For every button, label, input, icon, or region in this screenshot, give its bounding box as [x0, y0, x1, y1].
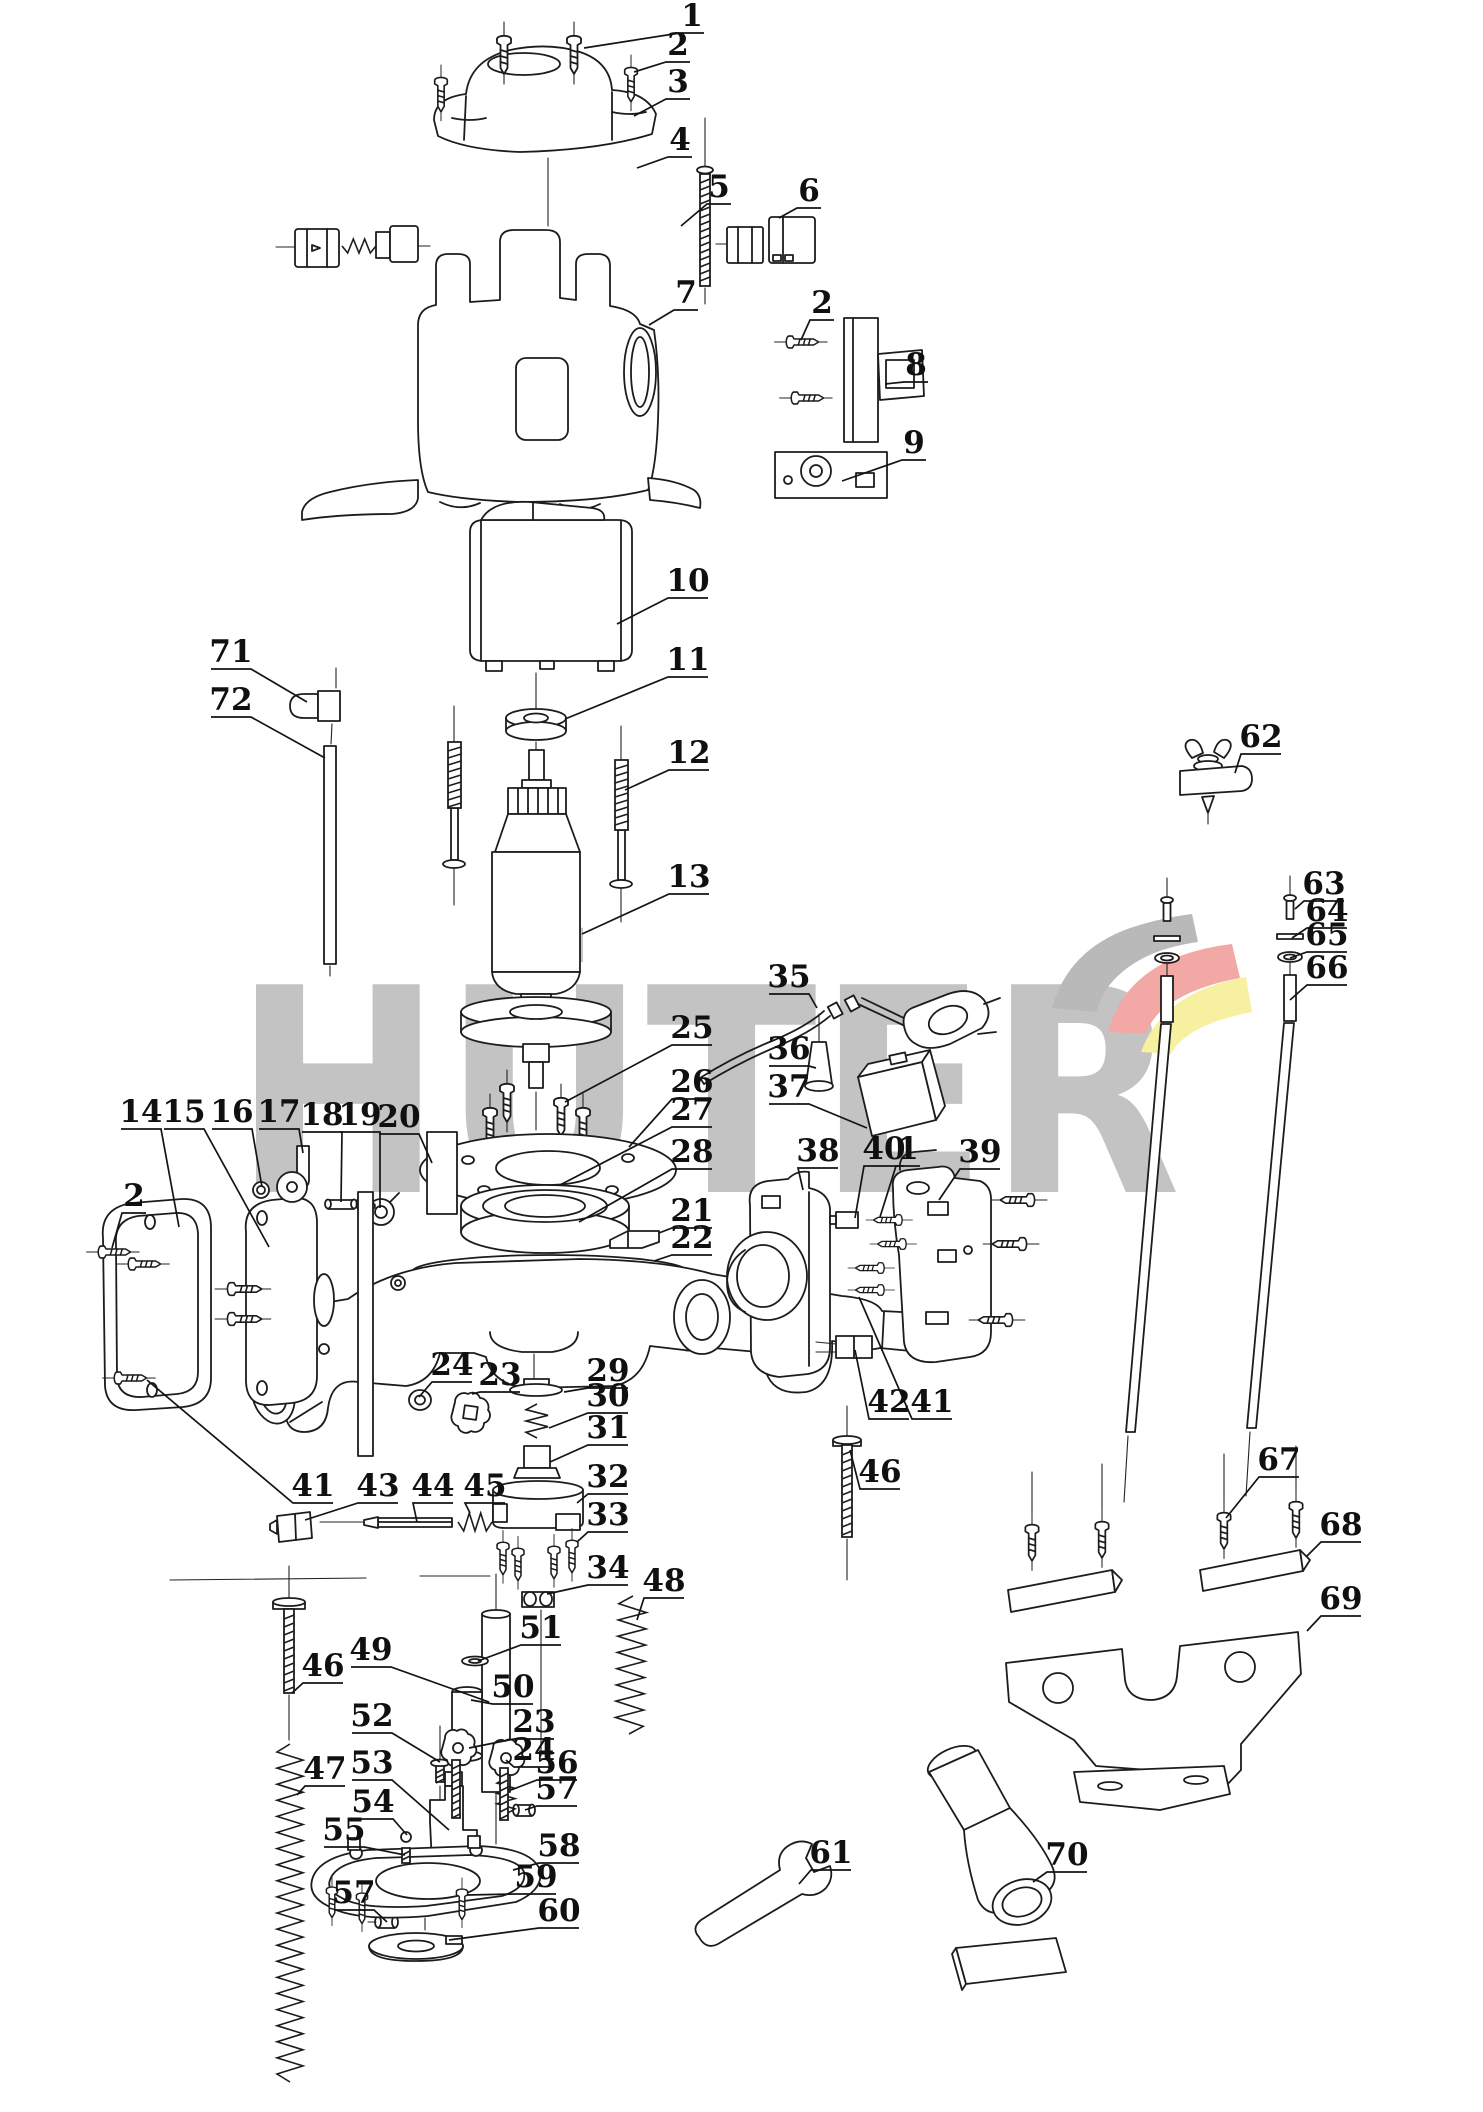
part-5-carbon-brush-left [276, 226, 430, 267]
callout-39: 39 [958, 1134, 1001, 1170]
part-27-bearing [461, 1185, 629, 1253]
callout-57a: 57 [332, 1875, 375, 1911]
callout-52: 52 [350, 1698, 393, 1734]
callout-leader-72 [211, 717, 325, 758]
part-guide-column [358, 1192, 373, 1456]
callout-59: 59 [514, 1859, 557, 1895]
callout-41b: 41 [910, 1384, 953, 1420]
part-71-clamp [290, 668, 340, 744]
callout-41a: 41 [291, 1468, 334, 1504]
part-57-nut-bottom [513, 1805, 535, 1817]
callout-23a: 23 [478, 1357, 521, 1393]
callout-2b: 2 [811, 285, 833, 321]
callout-42: 42 [867, 1384, 910, 1420]
callout-13: 13 [667, 859, 710, 895]
callout-55: 55 [322, 1812, 365, 1848]
callout-leader-66 [1290, 985, 1347, 1000]
callout-57b: 57 [535, 1771, 578, 1807]
part-31-sleeve [514, 1446, 560, 1478]
callout-7: 7 [675, 275, 697, 311]
part-11-bearing [506, 709, 566, 750]
callout-leader-48 [637, 1598, 684, 1620]
callout-71: 71 [209, 634, 252, 670]
callout-36: 36 [767, 1031, 810, 1067]
callout-35: 35 [767, 959, 810, 995]
callout-4: 4 [669, 122, 691, 158]
callout-18: 18 [300, 1097, 343, 1133]
callout-16: 16 [210, 1094, 253, 1130]
callout-44: 44 [411, 1468, 454, 1504]
part-68-clamp-bars [1008, 1550, 1310, 1612]
callout-6: 6 [798, 173, 820, 209]
callout-65: 65 [1305, 917, 1348, 953]
callout-72: 72 [209, 682, 252, 718]
part-9-bearing-plate [775, 452, 887, 498]
callout-2c: 2 [123, 1178, 145, 1214]
callout-15: 15 [162, 1094, 205, 1130]
part-10-stator [470, 502, 632, 708]
callout-leader-11 [565, 677, 708, 719]
part-6-brush-holder-right [716, 217, 815, 263]
spring-coil [342, 239, 376, 253]
callout-50: 50 [491, 1669, 534, 1705]
callout-leader-46a [292, 1683, 343, 1693]
part-72-rod [324, 746, 336, 976]
callout-5: 5 [708, 169, 730, 205]
callout-25: 25 [670, 1010, 713, 1046]
callout-19: 19 [338, 1097, 381, 1133]
callout-leader-47 [297, 1786, 345, 1795]
exploded-parts-diagram: HÜTER [0, 0, 1483, 2112]
callout-leader-7 [649, 310, 698, 325]
callout-38: 38 [796, 1133, 839, 1169]
callout-leader-12 [625, 770, 709, 790]
callout-2a: 2 [667, 27, 689, 63]
callout-27: 27 [670, 1092, 713, 1128]
callout-leader-68 [1307, 1542, 1361, 1556]
callout-49: 49 [349, 1632, 392, 1668]
callout-8: 8 [905, 347, 927, 383]
spring-coil [277, 1744, 303, 2082]
part-3-top-cap [434, 46, 656, 152]
callout-31: 31 [586, 1410, 629, 1446]
part-23-cross-knob [451, 1393, 490, 1433]
callout-17: 17 [257, 1094, 300, 1130]
callout-53: 53 [350, 1745, 393, 1781]
callout-67: 67 [1257, 1442, 1300, 1478]
spring-coil [458, 1513, 492, 1531]
diagram-svg: HÜTER [0, 0, 1483, 2112]
part-20-label-plate [427, 1132, 457, 1214]
part-24-lock-nut [409, 1390, 431, 1410]
callout-leader-2b [801, 320, 834, 340]
part-69-bracket [1006, 1632, 1301, 1810]
callout-69: 69 [1319, 1581, 1362, 1617]
callout-leader-67 [1226, 1477, 1299, 1518]
callout-leader-34 [547, 1585, 628, 1594]
callout-24a: 24 [430, 1347, 473, 1383]
callout-leader-60 [449, 1928, 579, 1940]
spring-coil [616, 1596, 647, 1734]
callout-1b: 1 [897, 1131, 919, 1167]
callout-34: 34 [586, 1550, 629, 1586]
callout-47: 47 [303, 1751, 346, 1787]
callout-33: 33 [586, 1497, 629, 1533]
callout-20: 20 [377, 1099, 420, 1135]
callout-28: 28 [670, 1134, 713, 1170]
callout-46b: 46 [858, 1454, 901, 1490]
part-44-flat-bar [320, 1517, 452, 1528]
part-43-block [270, 1512, 312, 1542]
callout-60: 60 [537, 1893, 580, 1929]
callout-66: 66 [1305, 950, 1348, 986]
part-39-housing-cover [893, 1150, 991, 1362]
callout-leader-69 [1307, 1616, 1361, 1631]
callout-leader-4 [637, 157, 692, 168]
callout-12: 12 [667, 735, 710, 771]
callout-48: 48 [642, 1563, 685, 1599]
callout-70: 70 [1045, 1837, 1088, 1873]
spring-coil [526, 1404, 548, 1438]
callout-43: 43 [356, 1468, 399, 1504]
callout-11: 11 [666, 642, 709, 678]
callout-10: 10 [666, 563, 709, 599]
callout-46a: 46 [301, 1648, 344, 1684]
callout-22: 22 [670, 1220, 713, 1256]
callout-68: 68 [1319, 1507, 1362, 1543]
callout-51: 51 [519, 1610, 562, 1646]
part-60-base-plate [369, 1933, 463, 1961]
callout-32: 32 [586, 1459, 629, 1495]
callout-61: 61 [809, 1835, 852, 1871]
callout-45: 45 [463, 1468, 506, 1504]
callout-30: 30 [586, 1378, 629, 1414]
callout-9: 9 [903, 425, 925, 461]
callout-14: 14 [119, 1094, 162, 1130]
callout-leader-33 [577, 1532, 628, 1542]
part-7-motor-housing [302, 230, 700, 520]
callout-37: 37 [767, 1069, 810, 1105]
part-63-66-depth-rod-right [1246, 876, 1303, 1496]
callout-62: 62 [1239, 719, 1282, 755]
callout-3: 3 [667, 64, 689, 100]
